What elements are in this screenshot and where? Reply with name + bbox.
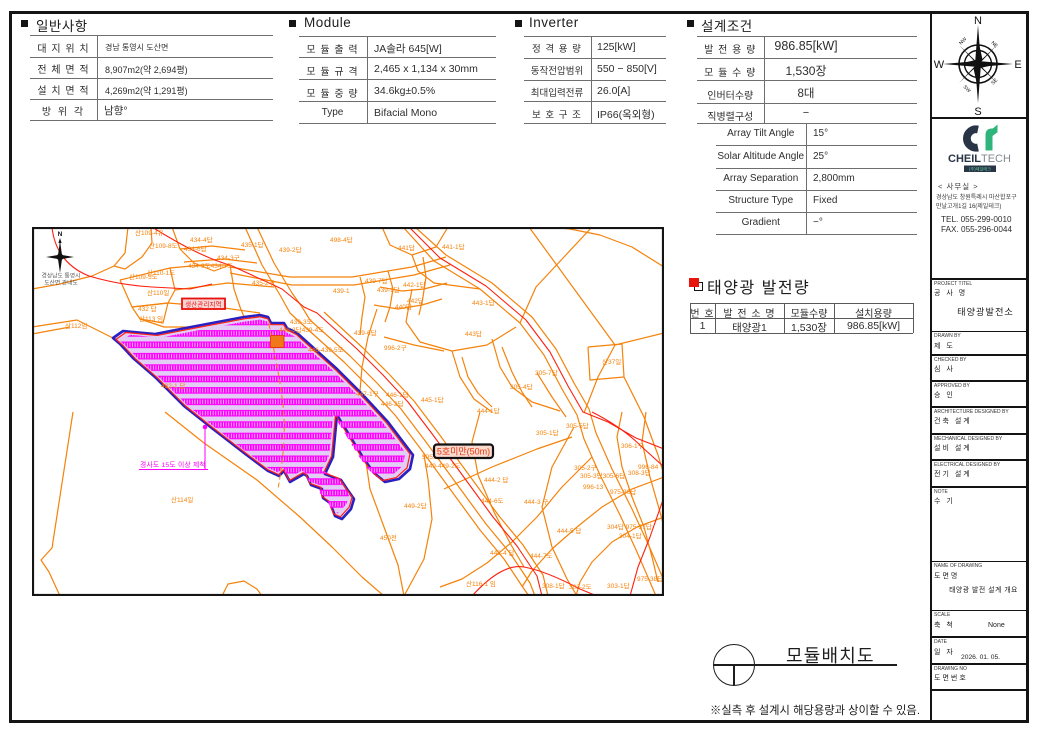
svg-text:444-7도: 444-7도 [530, 552, 553, 560]
svg-text:305-5답: 305-5답 [566, 422, 589, 430]
svg-text:산112임: 산112임 [65, 321, 87, 330]
svg-text:435-1답: 435-1답 [241, 241, 264, 249]
svg-text:439-6답: 439-6답 [354, 329, 377, 337]
svg-text:305-7답: 305-7답 [535, 369, 558, 377]
svg-text:443-1답: 443-1답 [472, 299, 495, 307]
svg-text:441답: 441답 [398, 244, 415, 252]
svg-text:446-1답: 446-1답 [386, 391, 409, 399]
svg-text:996-13: 996-13 [583, 484, 604, 491]
svg-text:441-1답: 441-1답 [442, 243, 465, 251]
svg-text:442-1답: 442-1답 [403, 281, 426, 289]
svg-text:5호미만(50m): 5호미만(50m) [437, 447, 490, 457]
svg-text:434-6답: 434-6답 [184, 245, 207, 253]
svg-text:303-1답: 303-1답 [607, 582, 630, 590]
svg-text:305-3답305-6답: 305-3답305-6답 [580, 472, 625, 480]
svg-text:996-2구: 996-2구 [384, 344, 407, 352]
svg-text:432-1 답: 432-1 답 [161, 382, 185, 390]
svg-text:975-38답: 975-38답 [637, 575, 663, 583]
svg-text:448-4 답: 448-4 답 [490, 549, 514, 557]
svg-text:306-1구: 306-1구 [621, 442, 644, 450]
svg-text:434-9도434-7도: 434-9도434-7도 [188, 262, 233, 270]
svg-text:산37일: 산37일 [602, 357, 621, 366]
svg-text:443답: 443답 [465, 330, 482, 338]
svg-text:996-84: 996-84 [638, 464, 659, 471]
svg-text:445-1답: 445-1답 [421, 396, 444, 404]
svg-text:449-449-2도: 449-449-2도 [425, 462, 461, 470]
svg-text:450전: 450전 [380, 533, 397, 542]
svg-text:산113 임: 산113 임 [139, 314, 163, 323]
svg-text:444-2 답: 444-2 답 [484, 476, 508, 484]
svg-text:E: E [1014, 59, 1021, 71]
svg-text:NW: NW [958, 36, 968, 46]
svg-text:304-1답: 304-1답 [619, 532, 642, 540]
svg-text:산109-8도: 산109-8도 [149, 241, 178, 250]
svg-text:W: W [934, 59, 945, 71]
svg-text:444-5 답: 444-5 답 [557, 527, 581, 535]
svg-text:305-4답: 305-4답 [510, 383, 533, 391]
svg-text:439-1: 439-1 [333, 288, 350, 295]
svg-text:432 답: 432 답 [138, 305, 157, 313]
svg-text:303-2도: 303-2도 [569, 583, 592, 591]
svg-text:NE: NE [990, 40, 1000, 50]
svg-text:산116-1 임: 산116-1 임 [466, 579, 496, 588]
svg-text:산110일: 산110일 [147, 288, 169, 297]
svg-text:산114일: 산114일 [171, 495, 193, 504]
svg-text:산109-4유: 산109-4유 [135, 228, 164, 237]
svg-text:304답 975-37답: 304답 975-37답 [607, 523, 652, 531]
svg-text:439-3도: 439-3도 [290, 318, 313, 326]
svg-text:447-1구: 447-1구 [356, 390, 379, 398]
svg-text:경사도 15도 이상 제척: 경사도 15도 이상 제척 [140, 460, 206, 469]
svg-text:S: S [974, 106, 981, 118]
svg-text:435-2구: 435-2구 [252, 279, 275, 287]
svg-text:446-439-5도: 446-439-5도 [308, 346, 344, 354]
svg-text:경상남도 통영시: 경상남도 통영시 [42, 272, 81, 280]
svg-text:N: N [58, 231, 63, 238]
svg-text:(주)제일테크: (주)제일테크 [969, 166, 991, 173]
svg-text:439-2답: 439-2답 [279, 246, 302, 254]
svg-text:449-2답: 449-2답 [404, 502, 427, 510]
svg-text:305-2구: 305-2구 [574, 464, 597, 472]
svg-text:444-1답: 444-1답 [477, 407, 500, 415]
svg-text:439-1답: 439-1답 [377, 286, 400, 294]
svg-text:444-3 구: 444-3 구 [524, 498, 548, 506]
svg-text:CHEIL: CHEIL [948, 153, 981, 165]
svg-text:440답: 440답 [395, 303, 412, 311]
svg-text:N: N [974, 15, 982, 27]
svg-text:산109-5도: 산109-5도 [129, 272, 158, 281]
svg-text:446-2답: 446-2답 [381, 400, 404, 408]
svg-text:434-4답: 434-4답 [190, 236, 213, 244]
svg-text:439-7답: 439-7답 [365, 277, 388, 285]
svg-text:444-6도: 444-6도 [481, 497, 504, 505]
svg-text:308-1답: 308-1답 [542, 582, 565, 590]
svg-text:도산면 관내도: 도산면 관내도 [44, 279, 78, 287]
svg-text:434-3구: 434-3구 [217, 254, 240, 262]
svg-text:975-36답: 975-36답 [610, 488, 636, 496]
svg-text:TECH: TECH [981, 153, 1011, 165]
svg-text:498-4답: 498-4답 [330, 236, 353, 244]
svg-text:SW: SW [962, 84, 972, 94]
svg-text:305-1답: 305-1답 [536, 429, 559, 437]
svg-text:448-3답439-4도: 448-3답439-4도 [279, 326, 324, 334]
svg-text:생산관리지역: 생산관리지역 [185, 300, 222, 309]
